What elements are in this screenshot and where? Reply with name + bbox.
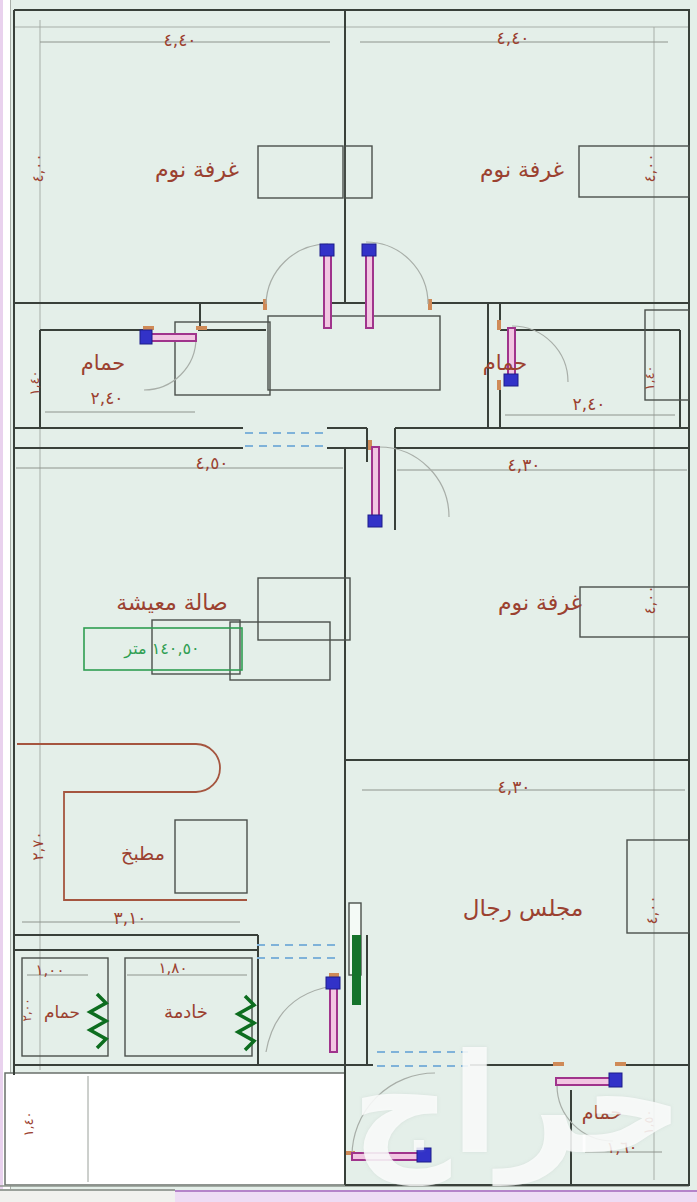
dim-bath-bottom-height: ١,٥٠ — [642, 1109, 655, 1134]
walls — [14, 10, 689, 1185]
dim-bedroom-tl-height: ٤,٠٠ — [31, 154, 46, 183]
room-label-bedroom-top-left: غرفة نوم — [155, 159, 239, 181]
dim-bath-right-height: ١,٤٠ — [643, 365, 656, 390]
dim-bedroom-tl-width: ٤,٤٠ — [164, 32, 197, 49]
room-label-maid: خادمة — [164, 1003, 208, 1021]
dim-kitchen-width: ٣,١٠ — [114, 910, 147, 927]
dim-bedroom-tr-height: ٤,٠٠ — [643, 154, 658, 183]
dim-bath-left-width: ٢,٤٠ — [91, 390, 124, 407]
room-label-bath-small: حمام — [44, 1004, 80, 1021]
room-label-living: صالة معيشة — [116, 592, 227, 614]
floorplan-canvas: غرفة نوم غرفة نوم حمام حمام صالة معيشة غ… — [0, 0, 697, 1202]
room-label-bath-bottom: حمام — [582, 1103, 622, 1122]
dim-bedroom-mid-width: ٤,٣٠ — [508, 457, 541, 474]
dim-bedroom-tr-width: ٤,٤٠ — [497, 30, 530, 47]
floorplan-svg — [0, 0, 697, 1202]
dim-bath-left-height: ١,٤٠ — [28, 370, 41, 395]
area-value: ١٤٠,٥٠ متر — [124, 641, 199, 657]
dim-bath-bottom-width: ١,٦٠ — [607, 1140, 638, 1156]
footer-lavender-band — [175, 1190, 697, 1202]
door-arcs — [144, 242, 613, 1156]
door-leaves — [146, 252, 614, 1160]
room-label-bath-right: حمام — [483, 353, 528, 374]
dim-maid-width: ١,٨٠ — [159, 961, 188, 976]
dim-majlis-width: ٤,٣٠ — [498, 779, 531, 796]
dim-bath-small-width: ١,٠٠ — [36, 963, 65, 978]
door-hinges — [140, 244, 622, 1162]
room-label-bedroom-top-right: غرفة نوم — [480, 159, 564, 181]
dim-living-width: ٤,٥٠ — [196, 455, 229, 472]
footer-left-strip — [0, 1189, 175, 1202]
dimension-extension-lines — [14, 20, 689, 1180]
room-label-bedroom-middle: غرفة نوم — [498, 592, 582, 614]
green-symbols — [90, 935, 361, 1050]
dim-majlis-height: ٤,٠٠ — [645, 896, 660, 925]
dim-bedroom-mid-height: ٤,٠٠ — [643, 586, 658, 615]
dim-kitchen-height: ٢,٧٠ — [31, 832, 46, 861]
dim-bath-small-height: ٢,٠٠ — [21, 998, 33, 1021]
dim-balcony-height: ١,٤٠ — [22, 1111, 35, 1136]
room-label-kitchen: مطبخ — [121, 844, 165, 863]
kitchen-counter — [17, 744, 247, 900]
dim-bath-right-width: ٢,٤٠ — [573, 396, 606, 413]
room-label-majlis: مجلس رجال — [463, 897, 583, 920]
room-label-bath-left: حمام — [81, 353, 126, 374]
